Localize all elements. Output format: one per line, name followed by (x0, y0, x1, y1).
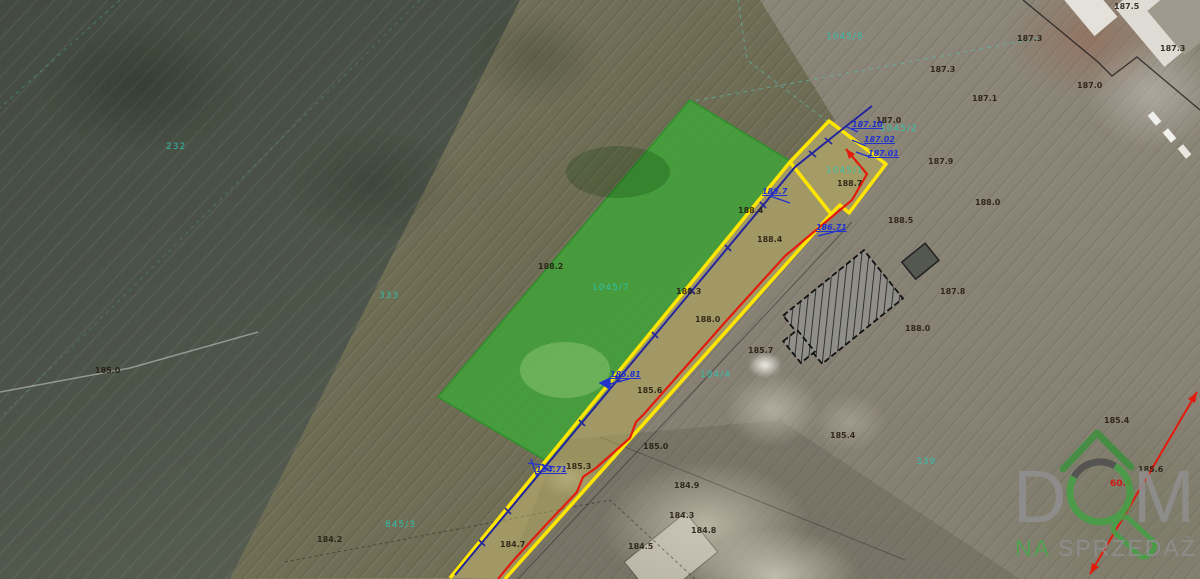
elevation-label: 188.3 (676, 288, 701, 296)
logo-letter-m: M (1133, 460, 1195, 534)
elevation-label: 185.7 (748, 347, 773, 355)
elevation-label: 184.5 (628, 543, 653, 551)
elevation-label: 187.0 (1077, 82, 1102, 90)
elevation-label: 187.5 (1114, 3, 1139, 11)
logo-tagline-rest: SPRZEDAŻ (1050, 535, 1197, 561)
elevation-label: 188.2 (538, 263, 563, 271)
elevation-label: 187.9 (928, 158, 953, 166)
logo-magnifier-gray-arc (1074, 462, 1115, 477)
utility-label: 185.81 (610, 371, 641, 379)
elevation-label: 185.3 (566, 463, 591, 471)
elevation-label: 187.8 (940, 288, 965, 296)
utility-label: 184.71 (536, 466, 567, 474)
parcel-label: 845/3 (385, 521, 416, 530)
watermark-logo: D M NA SPRZEDAŻ (985, 408, 1200, 579)
elevation-label: 188.0 (695, 316, 720, 324)
elevation-label: 184.9 (674, 482, 699, 490)
elevation-label: 187.1 (972, 95, 997, 103)
elevation-label: 184.7 (500, 541, 525, 549)
elevation-label: 187.3 (930, 66, 955, 74)
parcel-label: 1045/7 (592, 284, 630, 293)
logo-letter-d: D (1013, 460, 1066, 534)
elevation-label: 188.4 (738, 207, 763, 215)
parcel-label: 1045/1 (826, 167, 864, 176)
utility-label: 187.01 (868, 150, 899, 158)
parcel-label: 1045/8 (826, 33, 864, 42)
elevation-label: 184.2 (317, 536, 342, 544)
utility-label: 186.71 (816, 224, 847, 232)
map-stage[interactable]: 2323331045/71045/81045/11045/2184/4845/3… (0, 0, 1200, 579)
elevation-label: 188.0 (975, 199, 1000, 207)
elevation-label: 184.3 (669, 512, 694, 520)
elevation-label: 185.0 (95, 367, 120, 375)
utility-label: 187.02 (864, 136, 895, 144)
elevation-label: 188.5 (888, 217, 913, 225)
utility-label: 188.7 (762, 188, 787, 196)
elevation-label: 185.0 (643, 443, 668, 451)
elevation-label: 184.8 (691, 527, 716, 535)
elevation-label: 187.3 (1017, 35, 1042, 43)
parcel-label: 1045/2 (880, 125, 918, 134)
parcel-label: 333 (379, 292, 399, 301)
elevation-label: 185.6 (637, 387, 662, 395)
parcel-label: 232 (166, 143, 186, 152)
elevation-label: 185.4 (830, 432, 855, 440)
elevation-label: 188.7 (837, 180, 862, 188)
elevation-label: 188.4 (757, 236, 782, 244)
elevation-label: 187.3 (1160, 45, 1185, 53)
elevation-label: 188.0 (905, 325, 930, 333)
utility-label: 187.10 (852, 121, 883, 129)
logo-tagline: NA SPRZEDAŻ (1015, 535, 1197, 562)
parcel-label: 184/4 (700, 371, 731, 380)
logo-tagline-accent: NA (1015, 535, 1050, 561)
parcel-label: 339 (916, 458, 936, 467)
